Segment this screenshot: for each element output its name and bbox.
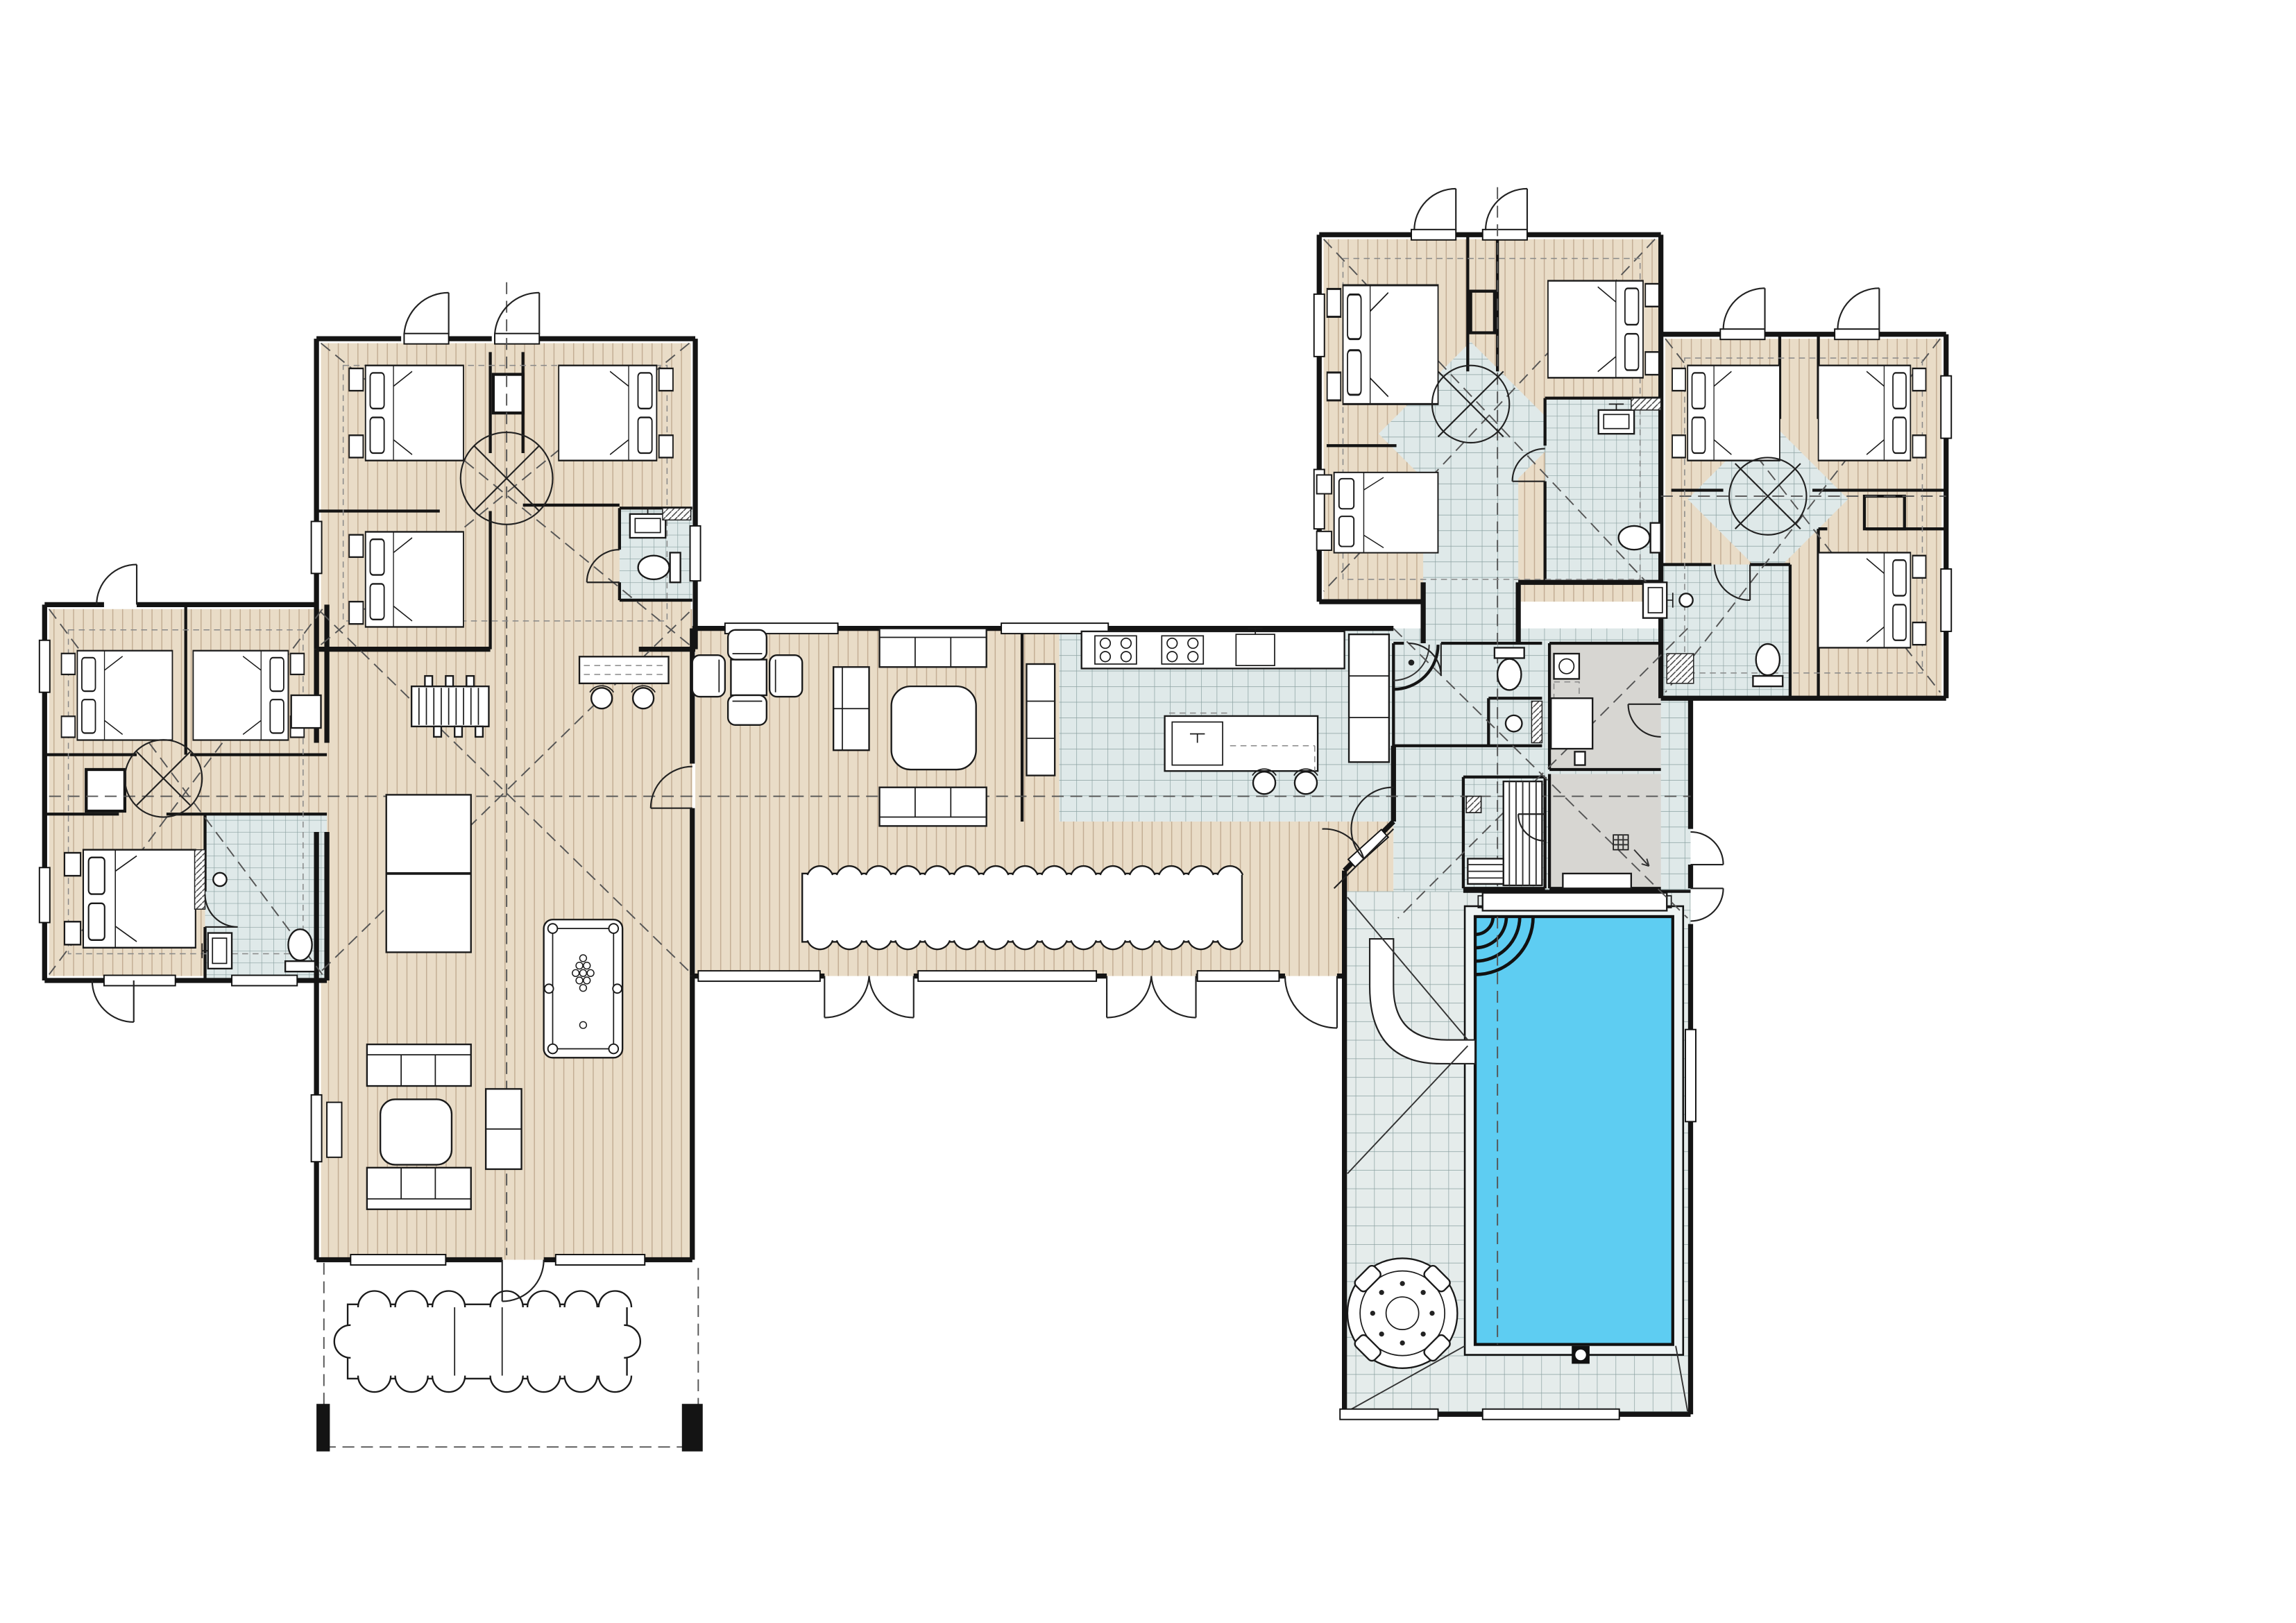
floor-drain bbox=[1572, 1346, 1590, 1364]
table-tennis-table bbox=[386, 794, 471, 952]
bench bbox=[1563, 874, 1631, 888]
bed bbox=[1548, 281, 1659, 378]
outdoor-dining-table bbox=[334, 1291, 640, 1392]
shower-strip bbox=[195, 850, 205, 910]
toilet bbox=[1753, 644, 1783, 686]
toilet bbox=[1495, 647, 1524, 690]
tall-cabinets bbox=[1349, 634, 1389, 762]
shower-tray bbox=[1667, 654, 1694, 683]
floor-plan-drawing bbox=[0, 0, 2296, 1623]
bed bbox=[559, 366, 673, 461]
bed bbox=[1327, 285, 1438, 404]
bookshelf bbox=[1026, 664, 1055, 776]
bed bbox=[1317, 473, 1438, 553]
bar-stool bbox=[1295, 772, 1317, 794]
bed bbox=[193, 651, 304, 740]
toilet bbox=[285, 929, 315, 971]
bed bbox=[1819, 552, 1926, 647]
pool-water bbox=[1475, 917, 1673, 1345]
towel-rail bbox=[1531, 702, 1542, 743]
sofa-group bbox=[880, 629, 987, 826]
bed bbox=[349, 366, 464, 461]
wash-basin bbox=[1679, 593, 1692, 606]
floor-plan-page bbox=[0, 0, 2296, 1623]
wash-basin bbox=[213, 873, 226, 886]
coffee-table bbox=[380, 1099, 452, 1164]
toilet bbox=[638, 552, 681, 582]
bedroom-desk bbox=[291, 695, 321, 728]
shower-strip bbox=[663, 508, 691, 520]
kitchen-counter bbox=[1082, 631, 1345, 669]
toilet bbox=[1619, 523, 1661, 553]
sauna-heater bbox=[1466, 797, 1481, 813]
bed bbox=[349, 532, 464, 627]
bed bbox=[62, 651, 173, 740]
hot-tub bbox=[1347, 1258, 1457, 1368]
dining-table-indoor bbox=[802, 866, 1243, 949]
pool-bench bbox=[1483, 893, 1667, 911]
patio bbox=[316, 1263, 703, 1452]
billiard-table bbox=[544, 919, 622, 1057]
bar-stool bbox=[1253, 772, 1275, 794]
wash-basin bbox=[1506, 715, 1522, 732]
shower-strip bbox=[1631, 398, 1661, 410]
bed bbox=[1819, 366, 1926, 461]
coffee-table bbox=[892, 686, 976, 770]
bed bbox=[1672, 366, 1780, 461]
bed bbox=[65, 850, 196, 948]
changing-room-floor bbox=[1549, 774, 1661, 888]
window-bench bbox=[833, 667, 869, 750]
worktable bbox=[1551, 698, 1592, 749]
